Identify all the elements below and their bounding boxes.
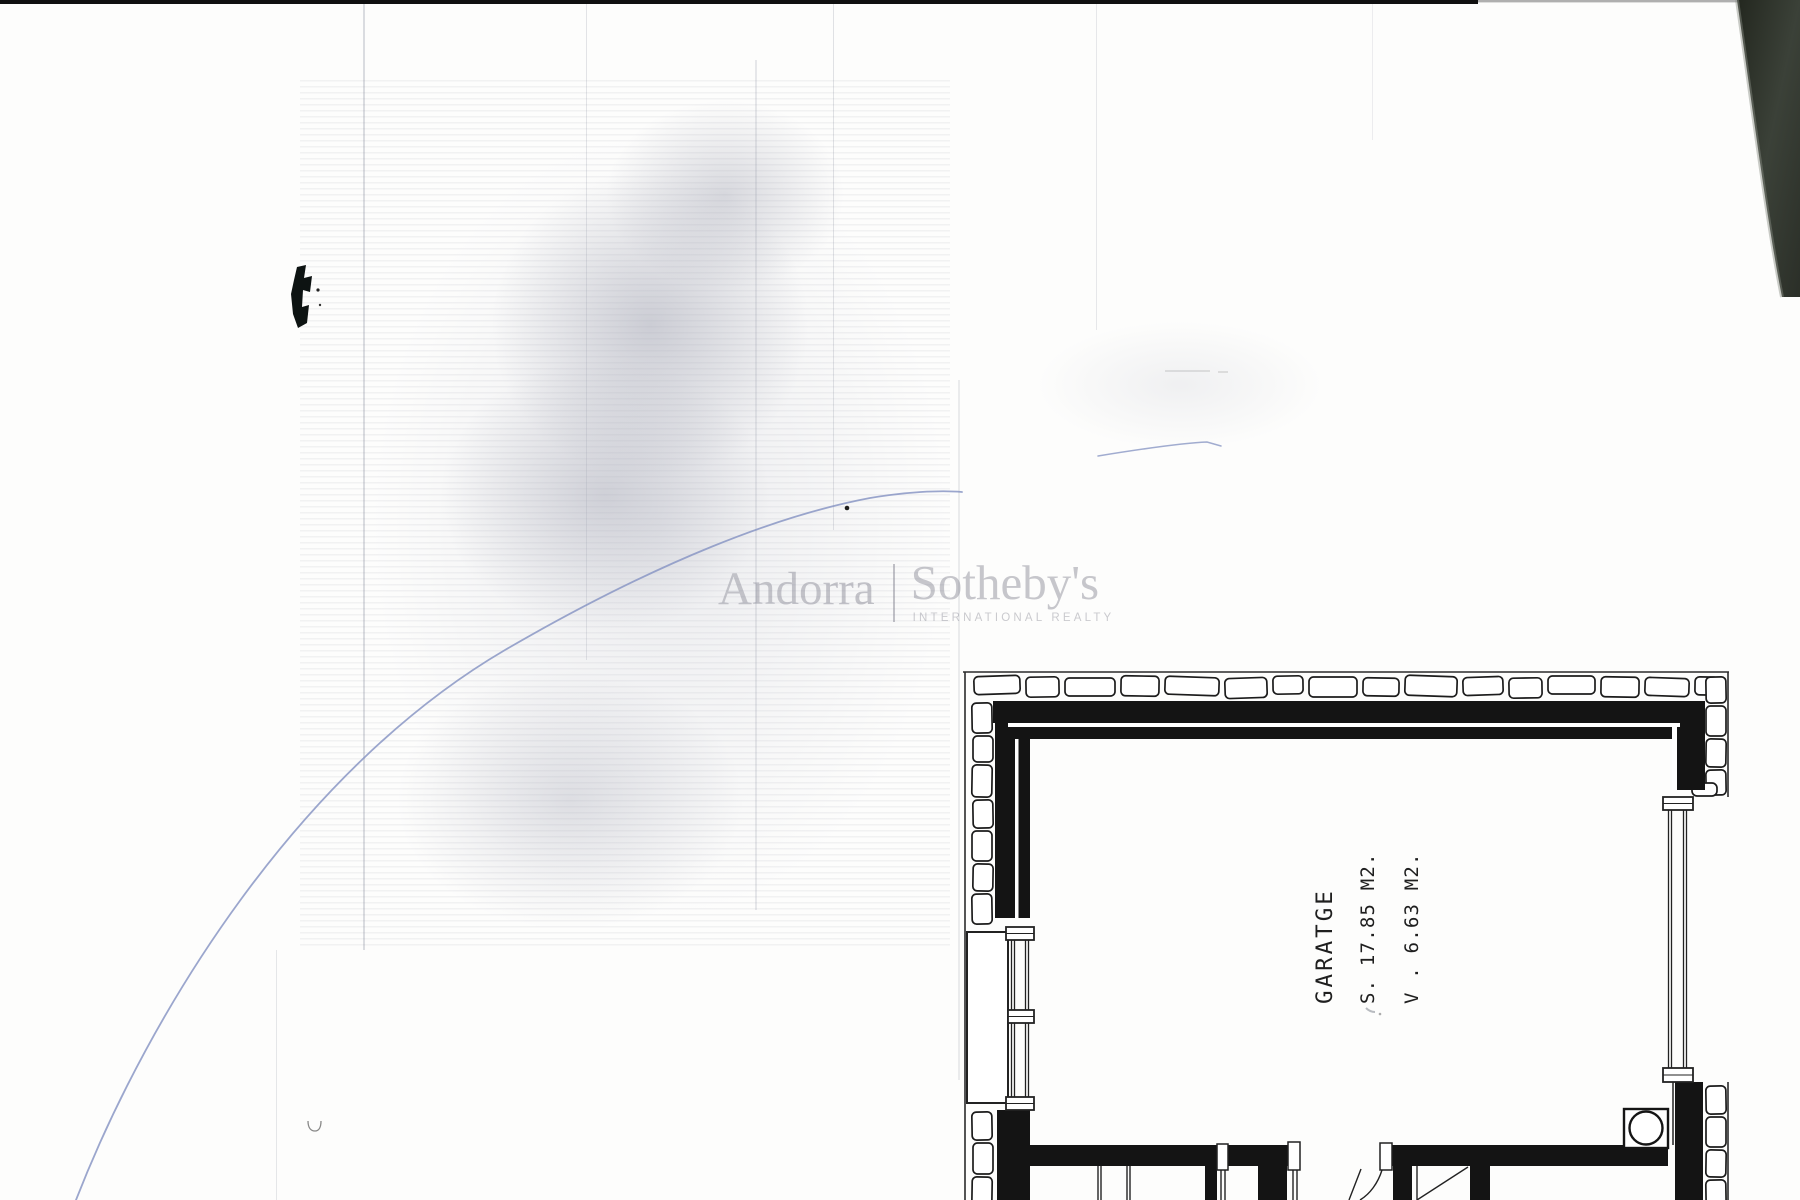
floor-plan-drawing	[0, 0, 1800, 1200]
wall-top-inner	[1010, 727, 1680, 739]
scan-edge-artifacts	[0, 0, 1800, 328]
stone-block	[1065, 678, 1115, 696]
stone-block	[1273, 676, 1303, 695]
stone-block	[973, 864, 993, 891]
small-marks	[308, 371, 1228, 1131]
stone-block	[1463, 676, 1504, 695]
stone-block	[972, 765, 993, 797]
stone-block	[1706, 1150, 1726, 1177]
window-left	[967, 927, 1034, 1110]
stone-block	[1645, 677, 1690, 697]
stone-block	[1309, 677, 1357, 697]
stone-block	[972, 1112, 992, 1140]
stone-block	[1026, 677, 1059, 698]
wall-bottom-b	[1228, 1145, 1288, 1166]
wall-left-upper	[995, 701, 1030, 918]
stone-masonry	[972, 675, 1727, 1200]
room-area-label: S. 17.85 M2.	[1359, 852, 1378, 1004]
stone-block	[973, 800, 993, 828]
stone-block	[1706, 677, 1726, 703]
ink-blot	[291, 265, 312, 328]
stone-block	[1165, 676, 1220, 696]
stone-block	[1601, 677, 1639, 698]
wall-top-outer	[993, 701, 1705, 723]
stone-block	[1509, 678, 1542, 699]
wall-bottom-a	[1012, 1145, 1217, 1166]
wall-seams	[1008, 723, 1680, 918]
door-swing-arc	[1360, 1170, 1382, 1200]
room-label-garatge: GARATGE	[1314, 888, 1337, 1004]
stone-block	[972, 1177, 993, 1200]
stone-block	[972, 831, 992, 861]
stone-block	[1405, 675, 1458, 697]
stone-block	[1363, 678, 1399, 697]
door-leaf-line	[1417, 1167, 1468, 1200]
stone-block	[1706, 739, 1726, 767]
stone-block	[973, 736, 993, 762]
stone-block	[972, 894, 993, 924]
stone-block	[973, 1143, 993, 1174]
stone-block	[1706, 1086, 1726, 1114]
boiler-circle	[1630, 1112, 1663, 1145]
boiler-symbol	[1624, 1109, 1668, 1148]
window-left-box	[967, 932, 1008, 1103]
interior-marks	[1366, 1008, 1381, 1015]
wall-right-lower	[1675, 1082, 1703, 1200]
top-edge-line	[0, 0, 1478, 4]
stone-block	[1706, 1180, 1727, 1200]
pen-stroke	[76, 442, 1221, 1200]
stone-block	[1225, 677, 1268, 698]
stone-block	[1706, 1117, 1726, 1147]
page-corner-shadow	[1737, 0, 1800, 297]
room-volume-label: V . 6.63 M2.	[1403, 852, 1422, 1004]
stone-block	[974, 675, 1021, 695]
wall-right-upper	[1677, 701, 1705, 790]
plan-outer-boundary	[963, 672, 1729, 1200]
stone-block	[972, 703, 993, 733]
scanned-page: Andorra Sotheby's INTERNATIONAL REALTY	[0, 0, 1800, 1200]
stone-block	[1121, 676, 1159, 697]
door-leaf-line	[1349, 1169, 1361, 1200]
stone-block	[1706, 706, 1726, 736]
garage-walls	[993, 701, 1705, 1200]
stone-block	[1548, 676, 1595, 694]
window-right	[1663, 797, 1693, 1082]
